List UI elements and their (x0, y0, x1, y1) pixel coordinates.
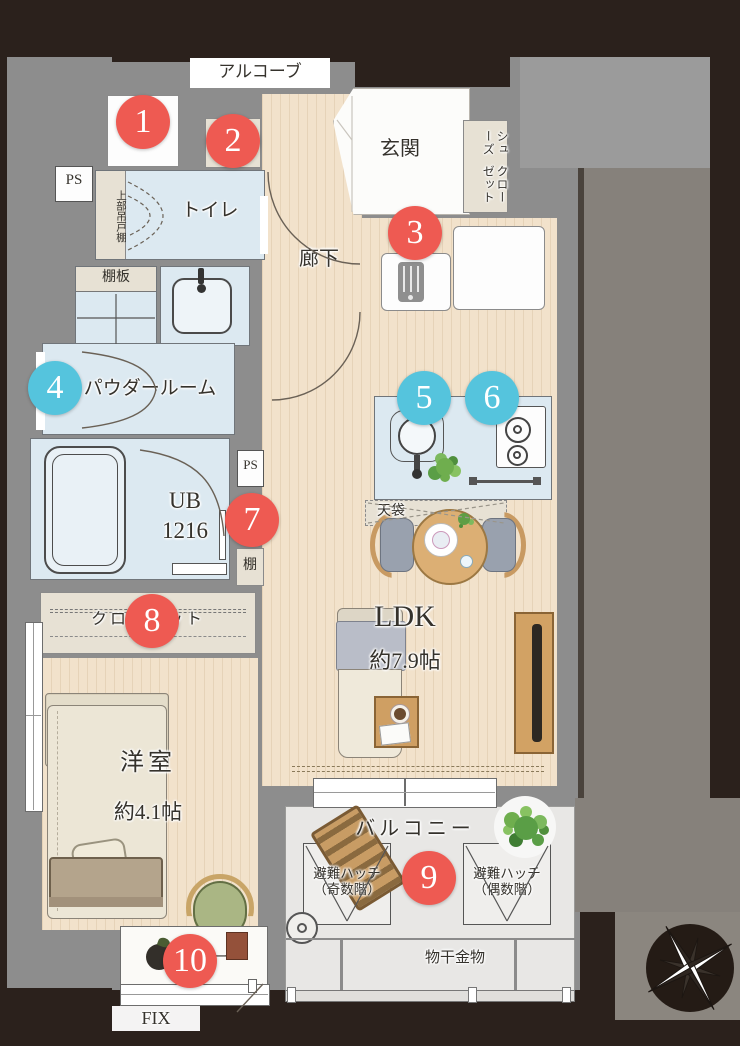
toilet-label: トイレ (165, 200, 255, 222)
shoe-closet-label-line2: クローゼット (463, 160, 508, 210)
marker-2[interactable]: 2 (206, 114, 260, 168)
kitchen-towel-bar-end-left (469, 477, 477, 485)
bath-counter (172, 563, 227, 575)
evac-hatch-odd-label: 避難ハッチ （奇数階） (299, 866, 395, 897)
evac-hatch-even-label: 避難ハッチ （偶数階） (459, 866, 555, 897)
outer-dark-left-edge (0, 0, 7, 1046)
bathtub-inner-rim (52, 454, 118, 566)
outer-dark-top-left (0, 0, 112, 57)
evac-hatch-odd-line1: 避難ハッチ (299, 866, 395, 882)
dining-plate-inner (432, 531, 450, 549)
stove-burner-1 (505, 417, 531, 443)
western-room-window-mullion (33, 623, 34, 810)
ceiling-storage-label: 天袋 (368, 504, 414, 520)
evac-hatch-even-line2: （偶数階） (459, 882, 555, 898)
dining-chair-left (380, 518, 414, 572)
evac-hatch-even-line1: 避難ハッチ (459, 866, 555, 882)
neighbor-unit-right (584, 168, 710, 810)
neighbor-block-bottom-1 (575, 798, 740, 912)
ps-upper-label: PS (55, 172, 93, 189)
balcony-window-rail (314, 792, 495, 793)
tv-screen (532, 624, 542, 742)
marker-5[interactable]: 5 (397, 371, 451, 425)
fix-window-rail (121, 994, 268, 995)
compass-icon (635, 910, 740, 1030)
bathtub (44, 446, 126, 574)
neighbor-block-top (520, 57, 710, 168)
hallway-label: 廊下 (276, 248, 362, 271)
balcony-plant (514, 816, 538, 840)
marker-1[interactable]: 1 (116, 95, 170, 149)
washer-icon (398, 262, 424, 302)
sink-faucet-knob (412, 469, 422, 479)
entrance-label: 玄関 (355, 138, 445, 161)
kitchen-towel-bar-end-right (533, 477, 541, 485)
washer-icon-stripes (403, 266, 419, 292)
floor-plan: アルコーブ 玄関 シューズ クローゼット PS 上部吊戸棚 トイレ 廊下 棚板 … (0, 0, 740, 1046)
balcony-bottom-rail (285, 990, 575, 1002)
balcony-rail-line (286, 938, 575, 940)
marker-3[interactable]: 3 (388, 206, 442, 260)
balcony-rail-bracket-3 (562, 987, 571, 1003)
powder-room-label: パウダールーム (70, 378, 230, 400)
shelf-board-label: 棚板 (76, 270, 156, 286)
marker-4[interactable]: 4 (28, 361, 82, 415)
marker-10[interactable]: 10 (163, 934, 217, 988)
dining-plant-sprig (458, 513, 470, 525)
marker-7[interactable]: 7 (225, 493, 279, 547)
alcove-label: アルコーブ (190, 62, 330, 82)
outer-dark-bottom-left (0, 988, 112, 1046)
balcony-window (313, 778, 497, 808)
upper-hanging-cabinet-label: 上部吊戸棚 (96, 176, 126, 256)
dining-table (412, 509, 488, 585)
dining-plate (424, 523, 458, 557)
desk-book (226, 932, 248, 960)
shoe-closet-label-line1: シューズ (463, 126, 508, 160)
unit-bath-label: UB 1216 (145, 486, 225, 546)
western-room-label: 洋室 (68, 750, 228, 778)
evac-hatch-odd-line2: （奇数階） (299, 882, 395, 898)
stove-burner-2 (507, 445, 528, 466)
washbasin-faucet-knob (197, 284, 206, 293)
balcony-label: バルコニー (330, 818, 500, 841)
ldk-edge-dashes-1 (292, 766, 544, 767)
western-room-size-label: 約4.1帖 (68, 800, 228, 824)
shoe-closet-label: シューズ クローゼット (463, 126, 508, 210)
ldk-edge-dashes-2 (292, 771, 544, 772)
fridge-space (453, 226, 545, 310)
coffee-cup (394, 708, 406, 720)
unit-bath-label-line1: UB (145, 486, 225, 516)
marker-6[interactable]: 6 (465, 371, 519, 425)
balcony-rail-post-left (340, 940, 343, 990)
stove-burner-2-inner (513, 451, 521, 459)
western-room-window-rail (26, 715, 41, 716)
fix-label: FIX (112, 1006, 200, 1031)
ps-middle-label: PS (237, 458, 264, 473)
unit-bath-label-line2: 1216 (145, 516, 225, 546)
dining-cup (460, 555, 473, 568)
hose-reel-hub (297, 923, 307, 933)
side-table (374, 696, 419, 748)
toilet-door-gap (260, 196, 268, 254)
western-bed-blanket-fold (49, 897, 163, 907)
laundry-fitting-label: 物干金物 (380, 950, 530, 967)
kitchen-towel-bar (473, 480, 537, 483)
tablet (379, 722, 411, 746)
stove-burner-1-inner (513, 425, 522, 434)
marker-9[interactable]: 9 (402, 851, 456, 905)
ldk-label: LDK (330, 600, 480, 635)
outer-dark-top-band (112, 0, 510, 62)
balcony-rail-bracket-1 (287, 987, 296, 1003)
marker-8[interactable]: 8 (125, 594, 179, 648)
fix-window-handle (248, 979, 257, 993)
shelf-label: 棚 (236, 558, 264, 574)
balcony-rail-bracket-2 (468, 987, 477, 1003)
western-room-window (25, 622, 43, 812)
ldk-size-label: 約7.9帖 (330, 648, 480, 673)
sink-faucet (414, 455, 420, 470)
outer-dark-top-right (510, 0, 740, 57)
kitchen-plant (436, 458, 454, 476)
washbasin-faucet (198, 268, 204, 284)
outer-dark-genkan-top (355, 57, 510, 87)
washer-icon-dot (408, 295, 413, 300)
